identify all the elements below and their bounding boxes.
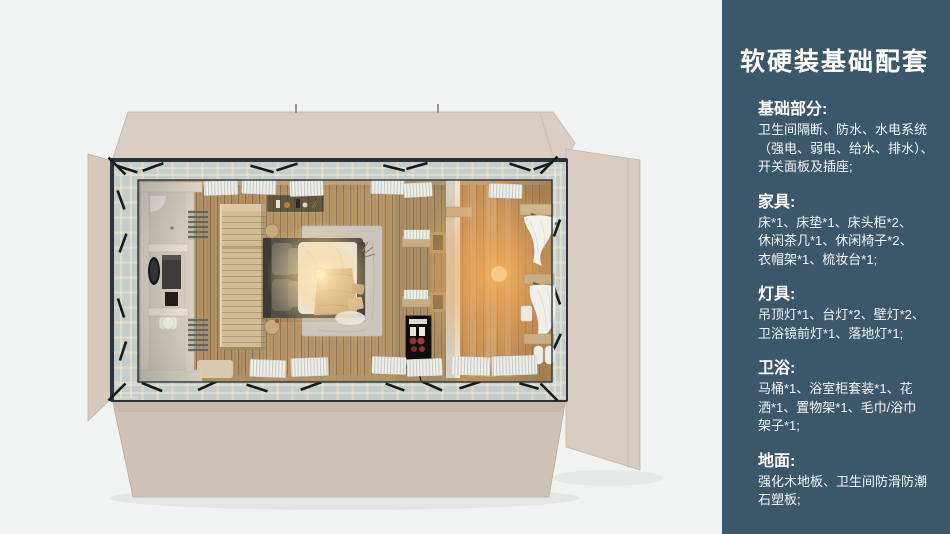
section-body: 卫生间隔断、防水、水电系统 （强电、弱电、给水、排水）、 开关面板及插座; [758, 121, 946, 177]
section-flooring: 地面: 强化木地板、卫生间防滑防潮 石塑板; [758, 452, 946, 510]
section-lighting: 灯具: 吊顶灯*1、台灯*2、壁灯*2、 卫浴镜前灯*1、落地灯*1; [758, 285, 946, 343]
info-panel: 软硬装基础配套 基础部分: 卫生间隔断、防水、水电系统 （强电、弱电、给水、排水… [722, 0, 950, 534]
wall-switch-box [521, 306, 532, 321]
panel-title: 软硬装基础配套 [740, 46, 946, 78]
section-heading: 灯具: [758, 285, 946, 304]
interior-vignette [138, 180, 552, 382]
section-heading: 卫浴: [758, 359, 946, 378]
section-body: 吊顶灯*1、台灯*2、壁灯*2、 卫浴镜前灯*1、落地灯*1; [758, 306, 946, 343]
section-basics: 基础部分: 卫生间隔断、防水、水电系统 （强电、弱电、给水、排水）、 开关面板及… [758, 100, 946, 177]
section-furniture: 家具: 床*1、床垫*1、床头柜*2、 休闲茶几*1、休闲椅子*2、 衣帽架*1… [758, 193, 946, 270]
slide: 软硬装基础配套 基础部分: 卫生间隔断、防水、水电系统 （强电、弱电、给水、排水… [0, 0, 950, 534]
section-heading: 家具: [758, 193, 946, 212]
roof-vent-pin [437, 104, 439, 113]
pelmet [520, 204, 553, 215]
section-body: 床*1、床垫*1、床头柜*2、 休闲茶几*1、休闲椅子*2、 衣帽架*1、梳妆台… [758, 214, 946, 270]
floorplan-render [0, 0, 722, 534]
section-heading: 地面: [758, 452, 946, 471]
section-body: 强化木地板、卫生间防滑防潮 石塑板; [758, 473, 946, 510]
roof-vent-pin [295, 104, 297, 113]
wall-shelf [524, 274, 554, 284]
wall-shelf [524, 334, 554, 344]
section-bathroom: 卫浴: 马桶*1、浴室柜套装*1、花 洒*1、置物架*1、毛巾/浴巾 架子*1; [758, 359, 946, 436]
floorplan-photo [0, 0, 722, 534]
section-body: 马桶*1、浴室柜套装*1、花 洒*1、置物架*1、毛巾/浴巾 架子*1; [758, 380, 946, 436]
section-heading: 基础部分: [758, 100, 946, 119]
